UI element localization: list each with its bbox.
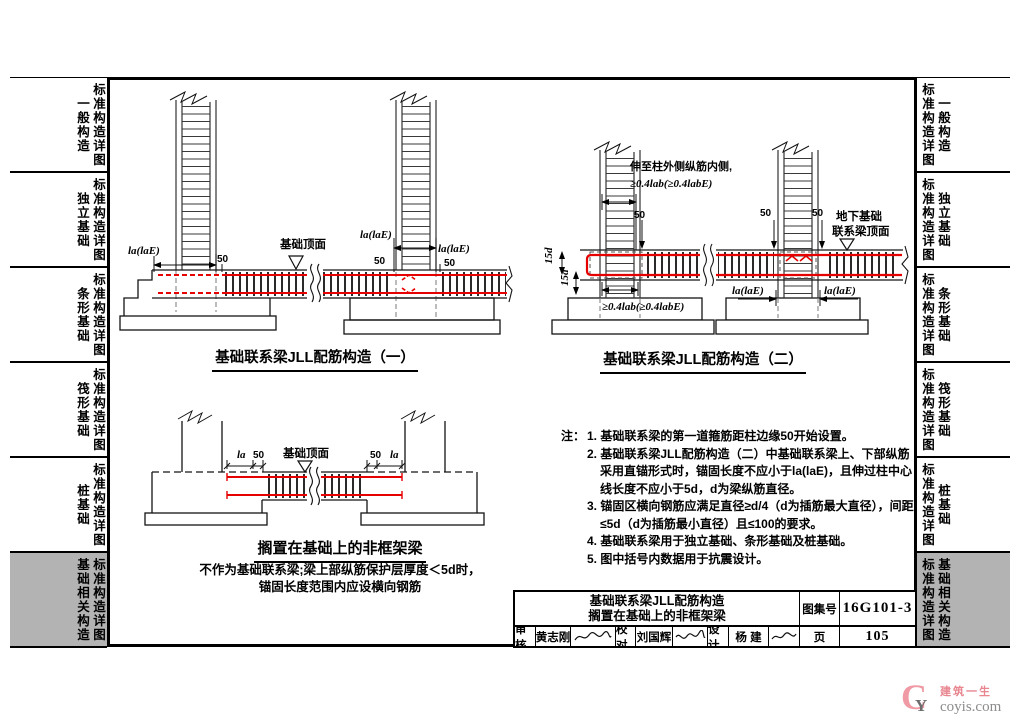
caption-line2: 锚固长度范围内应设横向钢筋 [165,579,515,596]
tab-general-construction: 标准构造详图 一般构造 [917,78,1010,173]
tab-category: 一般构造 [75,97,88,153]
tab-category: 桩基础 [936,484,949,526]
beam-end-break-symbol [506,266,513,302]
tab-category: 一般构造 [936,97,949,153]
tab-category: 独立基础 [936,192,949,248]
diagram-3-title: 搁置在基础上的非框架梁 [225,537,455,563]
tab-series-label: 标准构造详图 [920,83,933,167]
right-column [401,411,445,472]
designer-signature [768,627,799,646]
tab-category: 条形基础 [75,287,88,343]
tab-series-label: 标准构造详图 [920,178,933,262]
diagram-3-caption: 不作为基础联系梁;梁上部纵筋保护层厚度＜5d时， 锚固长度范围内应设横向钢筋 [165,562,515,596]
right-footing [716,298,868,334]
diagram-2-title: 基础联系梁JLL配筋构造（二） [588,348,818,374]
designer-name: 杨 建 [728,627,768,646]
sheet-title-line2: 搁置在基础上的非框架梁 [588,609,726,624]
stirrup-offset-label: 50 [444,258,456,269]
foundation-top-label: 基础顶面 [282,446,329,460]
foundation-top-label: 基础顶面 [279,237,326,251]
notes-prefix: 注： [561,428,587,568]
note-item: 2. 基础联系梁JLL配筋构造（二）中基础联系梁上、下部纵筋采用直锚形式时，锚固… [587,446,915,499]
note-item: 3. 锚固区横向钢筋应满足直径≥d/4（d为插筋最大直径），间距≤5d（d为插筋… [587,498,915,533]
page-label: 页 [799,627,839,646]
tab-foundation-related-active: 基础相关构造 标准构造详图 [10,553,107,648]
watermark-site: coyis.com [940,699,1001,716]
atlas-number-label: 图集号 [799,592,839,625]
tab-series-label: 标准构造详图 [920,558,933,642]
tab-category: 桩基础 [75,484,88,526]
tab-category: 筏形基础 [936,382,949,438]
coyis-logo-icon: C Y [901,680,935,718]
anchorage-label-mid: la(laE) [360,229,392,241]
right-footing [344,298,500,334]
tab-independent-foundation: 标准构造详图 独立基础 [917,173,1010,268]
watermark-logo: C Y 建筑一生 coyis.com [901,680,1001,718]
tab-general-construction: 一般构造 标准构造详图 [10,78,107,173]
stirrup-offset-label: 50 [253,450,265,461]
tab-series-label: 标准构造详图 [920,273,933,357]
tab-category: 筏形基础 [75,382,88,438]
left-footing [145,472,267,525]
right-index-tabs: 标准构造详图 一般构造 标准构造详图 独立基础 标准构造详图 条形基础 标准构造… [917,77,1010,647]
left-index-tabs: 一般构造 标准构造详图 独立基础 标准构造详图 条形基础 标准构造详图 筏形基础… [10,77,107,647]
note-item: 1. 基础联系梁的第一道箍筋距柱边缘50开始设置。 [587,428,915,446]
tab-pile-foundation: 标准构造详图 桩基础 [917,458,1010,553]
anchorage-label: la(laE) [732,285,764,297]
beam-break-symbol [307,264,323,303]
right-footing [361,472,484,525]
hook-15d-label: 15d [543,247,555,264]
tab-category: 基础相关构造 [75,558,88,642]
tab-raft-foundation: 标准构造详图 筏形基础 [917,363,1010,458]
beam-break-symbol [700,244,716,286]
tab-raft-foundation: 筏形基础 标准构造详图 [10,363,107,458]
reviewer-signature [570,627,615,646]
sheet-title: 基础联系梁JLL配筋构造 搁置在基础上的非框架梁 [515,592,799,625]
signature-scribble [770,630,798,644]
checker-name: 刘国辉 [635,627,672,646]
caption-line1: 不作为基础联系梁;梁上部纵筋保护层厚度＜5d时， [165,562,515,579]
left-column [170,88,222,312]
tab-strip-foundation: 条形基础 标准构造详图 [10,268,107,363]
tab-category: 条形基础 [936,287,949,343]
hook-15d-label: 15d [559,269,571,286]
tab-category: 基础相关构造 [936,558,949,642]
tab-series-label: 标准构造详图 [91,178,104,262]
review-label: 审核 [515,627,535,646]
watermark-brand: 建筑一生 [940,683,1001,699]
tab-series-label: 标准构造详图 [920,368,933,452]
bottom-anchor-label: ≥0.4lab(≥0.4labE) [602,301,684,313]
page-number: 105 [839,627,915,646]
diagram-1-title: 基础联系梁JLL配筋构造（一） [200,346,430,372]
level-triangle-icon [840,239,854,250]
note-item: 4. 基础联系梁用于独立基础、条形基础及桩基础。 [587,533,915,551]
extend-note-line2: ≥0.4lab(≥0.4labE) [630,178,712,190]
level-triangle-icon [289,256,303,269]
design-label: 设计 [707,627,728,646]
sheet-title-line1: 基础联系梁JLL配筋构造 [590,594,725,609]
stirrup-offset-label: 50 [760,208,772,219]
underground-top-label-line1: 地下基础 [836,209,882,223]
tie-beam [152,270,510,298]
right-column [772,140,824,318]
stirrup-offset-label: 50 [217,254,229,265]
tab-series-label: 标准构造详图 [920,463,933,547]
stirrup-offset-label: 50 [374,256,386,267]
stirrup-offset-label: 50 [634,210,646,221]
signature-scribble [573,630,613,644]
tab-pile-foundation: 桩基础 标准构造详图 [10,458,107,553]
right-column [390,88,442,318]
tab-series-label: 标准构造详图 [91,368,104,452]
left-column [178,411,222,472]
underground-top-label-line2: 联系梁顶面 [832,224,890,238]
tab-series-label: 标准构造详图 [91,558,104,642]
diagram-nonframe-beam: la 50 基础顶面 50 la [140,405,500,540]
tab-foundation-related-active: 标准构造详图 基础相关构造 [917,553,1010,648]
reviewer-name: 黄志刚 [535,627,570,646]
stirrup-offset-label: 50 [370,450,382,461]
diagram-jll-detail-2: 伸至柱外侧纵筋内侧, ≥0.4lab(≥0.4labE) 50 50 50 地下… [540,140,915,352]
checker-signature [672,627,707,646]
notes-list: 1. 基础联系梁的第一道箍筋距柱边缘50开始设置。 2. 基础联系梁JLL配筋构… [587,428,915,568]
tab-strip-foundation: 标准构造详图 条形基础 [917,268,1010,363]
tab-category: 独立基础 [75,192,88,248]
anchorage-la-label: la [237,449,246,461]
tab-independent-foundation: 独立基础 标准构造详图 [10,173,107,268]
anchorage-label-left: la(laE) [128,245,160,257]
note-item: 5. 图中括号内数据用于抗震设计。 [587,551,915,569]
tab-series-label: 标准构造详图 [91,463,104,547]
anchorage-label-right: la(laE) [438,243,470,255]
watermark-text: 建筑一生 coyis.com [940,683,1001,716]
diagram-jll-detail-1: la(laE) 50 基础顶面 la(laE) 50 la(laE) 50 [118,88,513,354]
notes-block: 注： 1. 基础联系梁的第一道箍筋距柱边缘50开始设置。 2. 基础联系梁JLL… [561,428,915,568]
beam-break-symbol [307,467,321,505]
beam-end-break-symbol [902,246,910,284]
atlas-number-value: 16G101-3 [839,592,915,625]
stirrup-offset-label: 50 [812,208,824,219]
tab-series-label: 标准构造详图 [91,83,104,167]
tab-series-label: 标准构造详图 [91,273,104,357]
signature-scribble [674,630,706,644]
title-block: 基础联系梁JLL配筋构造 搁置在基础上的非框架梁 图集号 16G101-3 审核… [513,590,917,648]
anchorage-la-label: la [390,449,399,461]
check-label: 校对 [615,627,635,646]
extend-note-line1: 伸至柱外侧纵筋内侧, [629,159,732,173]
anchorage-label: la(laE) [824,285,856,297]
